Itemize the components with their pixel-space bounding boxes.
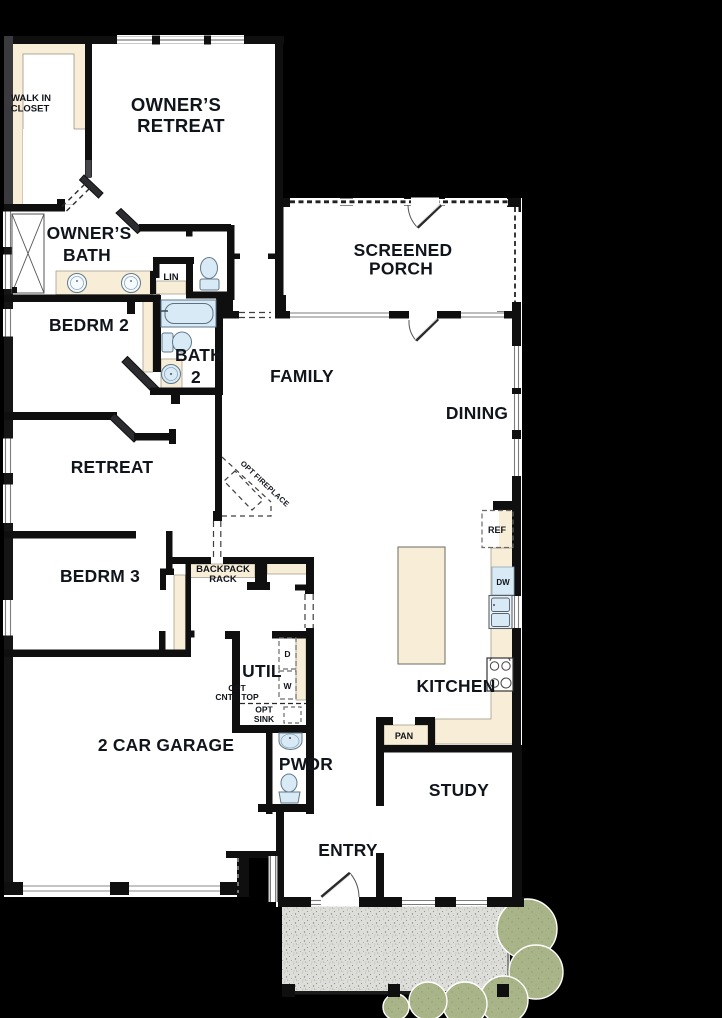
svg-text:PAN: PAN xyxy=(395,731,413,741)
svg-text:DINING: DINING xyxy=(446,403,508,423)
svg-text:FAMILY: FAMILY xyxy=(270,366,334,386)
svg-text:REF: REF xyxy=(488,525,507,535)
svg-text:SINK: SINK xyxy=(254,714,275,724)
svg-text:RETREAT: RETREAT xyxy=(137,115,225,136)
svg-text:LIN: LIN xyxy=(163,272,178,283)
svg-text:BEDRM 2: BEDRM 2 xyxy=(49,315,129,335)
svg-text:KITCHEN: KITCHEN xyxy=(416,676,495,696)
svg-text:WALK IN: WALK IN xyxy=(11,93,51,104)
svg-text:OWNER’S: OWNER’S xyxy=(47,223,132,243)
svg-text:D: D xyxy=(284,649,290,659)
svg-text:2: 2 xyxy=(191,367,201,387)
svg-text:RACK: RACK xyxy=(209,574,237,585)
svg-text:OPT: OPT xyxy=(255,705,273,715)
svg-text:CLOSET: CLOSET xyxy=(11,104,50,115)
svg-text:BATH: BATH xyxy=(175,345,223,365)
svg-text:PWDR: PWDR xyxy=(279,754,333,774)
svg-text:PORCH: PORCH xyxy=(369,259,433,279)
svg-text:OWNER’S: OWNER’S xyxy=(131,94,221,115)
svg-text:W: W xyxy=(283,681,292,691)
svg-text:STUDY: STUDY xyxy=(429,780,489,800)
svg-text:ENTRY: ENTRY xyxy=(318,840,378,860)
svg-text:DW: DW xyxy=(496,578,510,587)
svg-text:RETREAT: RETREAT xyxy=(71,457,154,477)
svg-text:BATH: BATH xyxy=(63,245,111,265)
svg-text:SCREENED: SCREENED xyxy=(354,240,453,260)
svg-text:BEDRM 3: BEDRM 3 xyxy=(60,566,140,586)
svg-text:CNTR TOP: CNTR TOP xyxy=(215,692,259,702)
svg-text:2 CAR GARAGE: 2 CAR GARAGE xyxy=(98,735,234,755)
svg-text:UTIL: UTIL xyxy=(242,661,282,681)
